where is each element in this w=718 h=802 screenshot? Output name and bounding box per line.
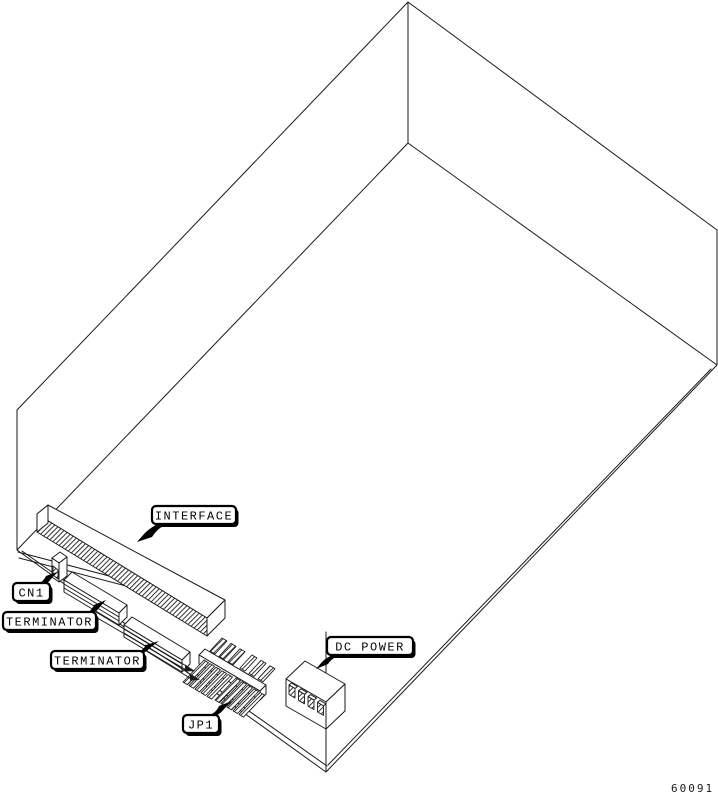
callout-dc-power: DC POWER [316,637,416,669]
callout-terminator-upper-label: TERMINATOR [6,616,93,630]
callout-interface-label: INTERFACE [155,510,233,524]
jp1-jumper-block [183,638,275,717]
chassis-front-right-rim-inner [328,369,711,765]
chassis-bottom-face-right-edge [408,143,717,365]
callout-cn1: CN1 [13,572,57,604]
callout-cn1-label: CN1 [18,587,44,601]
chassis-top-right-edge [408,2,717,230]
dc-power-connector [286,661,345,729]
callout-jp1: JP1 [183,701,232,736]
chassis-top-left-edge [17,2,408,410]
callout-terminator-lower-label: TERMINATOR [54,655,141,669]
callout-dc-power-label: DC POWER [335,641,405,655]
technical-diagram-page: INTERFACE CN1 TERMINATOR TERMINATOR JP1 … [0,0,718,802]
chassis-front-right-rim-outer [326,365,717,772]
chassis-bottom-face-left-edge [17,143,408,550]
drive-connector-diagram: INTERFACE CN1 TERMINATOR TERMINATOR JP1 … [0,0,718,802]
callout-jp1-label: JP1 [188,719,214,733]
callout-interface: INTERFACE [137,506,239,542]
figure-number: 60091 [671,782,714,795]
leader-upper-arrowhead [185,665,195,672]
cn1-connector [52,552,67,582]
